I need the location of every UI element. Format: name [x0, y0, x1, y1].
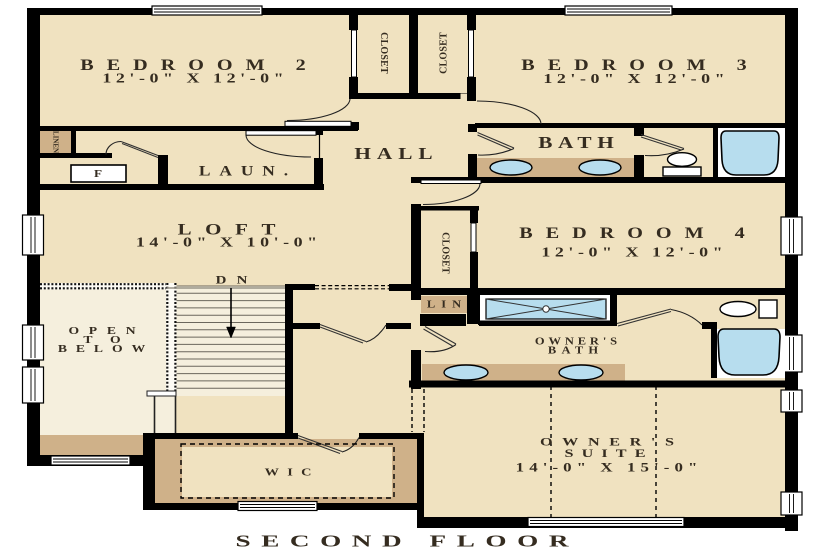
- svg-text:CLOSET: CLOSET: [439, 32, 450, 74]
- svg-text:HALL: HALL: [354, 145, 438, 164]
- svg-text:BATH: BATH: [538, 134, 619, 153]
- svg-text:CLOSET: CLOSET: [440, 232, 451, 274]
- svg-text:F: F: [94, 167, 102, 180]
- svg-text:12'-0" X 12'-0": 12'-0" X 12'-0": [543, 72, 729, 87]
- svg-text:BELOW: BELOW: [58, 343, 154, 355]
- svg-text:SECOND FLOOR: SECOND FLOOR: [236, 532, 580, 551]
- svg-text:DN: DN: [216, 273, 258, 286]
- svg-text:WIC: WIC: [265, 466, 320, 478]
- svg-text:12'-0" X 12'-0": 12'-0" X 12'-0": [541, 245, 727, 260]
- svg-text:SUITE: SUITE: [564, 447, 653, 460]
- svg-text:BEDROOM 4: BEDROOM 4: [519, 224, 757, 241]
- svg-text:LAUN.: LAUN.: [199, 164, 297, 179]
- svg-text:14'-0" X 10'-0": 14'-0" X 10'-0": [136, 235, 322, 250]
- svg-text:BATH: BATH: [548, 346, 603, 357]
- svg-text:LINEN: LINEN: [52, 131, 60, 153]
- svg-text:CLOSET: CLOSET: [378, 32, 389, 74]
- svg-text:14'-0" X 15'-0": 14'-0" X 15'-0": [516, 461, 703, 475]
- svg-text:LIN: LIN: [427, 300, 467, 311]
- svg-text:12'-0" X 12'-0": 12'-0" X 12'-0": [102, 71, 288, 86]
